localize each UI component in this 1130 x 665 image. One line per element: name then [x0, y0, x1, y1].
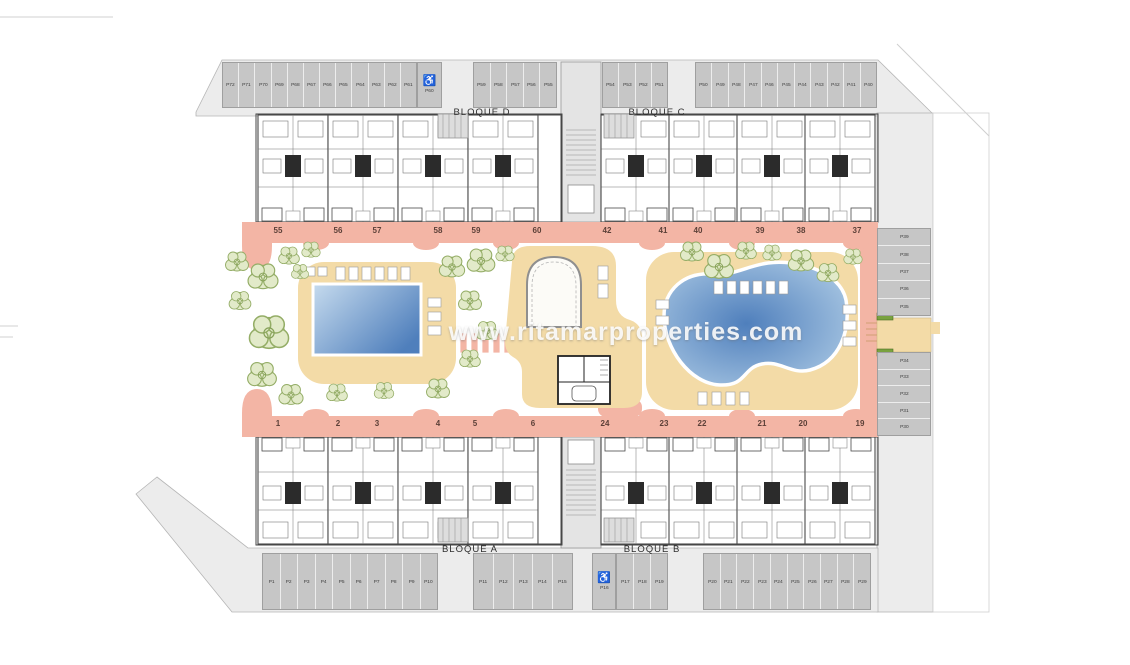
- building-bloque-c: [601, 114, 878, 222]
- parking-stall-label: P63: [372, 83, 381, 88]
- parking-stall-label: P27: [824, 579, 833, 584]
- parking-stall-p51: P51: [651, 63, 667, 107]
- parking-stall-label: P53: [623, 83, 632, 88]
- building-bloque-a: [258, 437, 561, 544]
- parking-stall-label: P10: [424, 579, 433, 584]
- parking-group-right-lower: P34P33P32P31P30: [877, 352, 931, 436]
- corridor-bottom: [561, 437, 601, 548]
- parking-stall-label: P72: [226, 83, 235, 88]
- parking-stall-label: P29: [858, 579, 867, 584]
- unit-number-58: 58: [434, 227, 443, 235]
- parking-stall-label: P1: [268, 579, 274, 584]
- parking-stall-p67: P67: [303, 63, 319, 107]
- parking-stall-p30: P30: [878, 418, 930, 435]
- unit-number-41: 41: [659, 227, 668, 235]
- parking-stall-p61: P61: [400, 63, 416, 107]
- parking-stall-p31: P31: [878, 402, 930, 419]
- parking-stall-label: P25: [791, 579, 800, 584]
- parking-stall-label: P71: [242, 83, 251, 88]
- parking-stall-label: P9: [408, 579, 414, 584]
- parking-stall-p24: P24: [770, 554, 787, 609]
- parking-stall-label: P7: [373, 579, 379, 584]
- parking-stall-p49: P49: [711, 63, 727, 107]
- parking-stall-p5: P5: [332, 554, 350, 609]
- parking-stall-p9: P9: [402, 554, 420, 609]
- parking-group-bottom-c: P17P18P19: [616, 553, 668, 610]
- parking-stall-p12: P12: [493, 554, 513, 609]
- parking-stall-p41: P41: [843, 63, 859, 107]
- parking-stall-label: P2: [286, 579, 292, 584]
- parking-stall-p55: P55: [539, 63, 556, 107]
- parking-stall-p29: P29: [853, 554, 870, 609]
- parking-stall-p56: P56: [523, 63, 540, 107]
- unit-number-6: 6: [531, 420, 535, 428]
- unit-number-5: 5: [473, 420, 477, 428]
- parking-stall-p63: P63: [368, 63, 384, 107]
- parking-stall-p14: P14: [532, 554, 552, 609]
- parking-stall-p42: P42: [827, 63, 843, 107]
- block-label-bloque-b: BLOQUE B: [624, 544, 681, 555]
- parking-stall-p25: P25: [787, 554, 804, 609]
- parking-stall-p62: P62: [384, 63, 400, 107]
- parking-stall-label: P13: [519, 579, 528, 584]
- unit-number-37: 37: [853, 227, 862, 235]
- parking-stall-p66: P66: [319, 63, 335, 107]
- parking-stall-label: P23: [758, 579, 767, 584]
- parking-group-top-acc: ♿P60: [417, 62, 442, 108]
- parking-stall-p16: ♿P16: [593, 554, 615, 609]
- parking-stall-label: P58: [494, 83, 503, 88]
- parking-stall-label: P6: [356, 579, 362, 584]
- unit-number-57: 57: [373, 227, 382, 235]
- central-pavilion: [527, 257, 581, 327]
- parking-stall-p65: P65: [335, 63, 351, 107]
- block-label-bloque-a: BLOQUE A: [442, 544, 498, 555]
- parking-stall-label: P17: [621, 579, 630, 584]
- unit-number-3: 3: [375, 420, 379, 428]
- parking-stall-p3: P3: [297, 554, 315, 609]
- parking-stall-label: P44: [798, 83, 807, 88]
- unit-number-59: 59: [472, 227, 481, 235]
- parking-stall-p11: P11: [474, 554, 493, 609]
- parking-stall-label: P22: [741, 579, 750, 584]
- building-bloque-d: [256, 114, 562, 222]
- parking-stall-label: P56: [527, 83, 536, 88]
- corridor-top: [561, 62, 601, 222]
- changing-rooms: [558, 356, 610, 404]
- floor-plan: BLOQUE D BLOQUE C BLOQUE A BLOQUE B www.…: [0, 0, 1130, 665]
- parking-stall-p46: P46: [761, 63, 777, 107]
- unit-number-39: 39: [756, 227, 765, 235]
- wheelchair-icon: ♿: [423, 76, 437, 87]
- parking-group-bottom-b: P11P12P13P14P15: [473, 553, 573, 610]
- parking-stall-label: P61: [404, 83, 413, 88]
- parking-stall-p20: P20: [704, 554, 720, 609]
- unit-number-40: 40: [694, 227, 703, 235]
- parking-stall-label: P5: [338, 579, 344, 584]
- parking-stall-p43: P43: [810, 63, 826, 107]
- parking-stall-p13: P13: [513, 554, 533, 609]
- unit-number-22: 22: [698, 420, 707, 428]
- parking-stall-label: P12: [499, 579, 508, 584]
- parking-stall-p4: P4: [315, 554, 333, 609]
- parking-stall-p21: P21: [720, 554, 737, 609]
- parking-stall-p59: P59: [474, 63, 490, 107]
- parking-group-top-b: P59P58P57P56P55: [473, 62, 557, 108]
- parking-stall-p70: P70: [254, 63, 270, 107]
- unit-number-24: 24: [601, 420, 610, 428]
- parking-group-top-a: P72P71P70P69P68P67P66P65P64P63P62P61: [222, 62, 417, 108]
- parking-stall-p57: P57: [506, 63, 523, 107]
- parking-stall-p71: P71: [238, 63, 254, 107]
- unit-number-21: 21: [758, 420, 767, 428]
- parking-stall-p28: P28: [837, 554, 854, 609]
- parking-stall-label: P70: [259, 83, 268, 88]
- parking-stall-label: P42: [831, 83, 840, 88]
- parking-group-top-c: P54P53P52P51: [602, 62, 668, 108]
- parking-stall-p10: P10: [420, 554, 438, 609]
- parking-stall-label: P51: [655, 83, 664, 88]
- parking-stall-p40: P40: [860, 63, 876, 107]
- parking-stall-label: P66: [323, 83, 332, 88]
- unit-number-38: 38: [797, 227, 806, 235]
- parking-stall-p19: P19: [650, 554, 667, 609]
- parking-stall-p36: P36: [878, 280, 930, 297]
- parking-stall-label: P26: [808, 579, 817, 584]
- parking-stall-label: P40: [864, 83, 873, 88]
- crop-marks: [0, 17, 113, 337]
- parking-stall-p37: P37: [878, 263, 930, 280]
- parking-stall-label: P38: [900, 252, 909, 257]
- parking-stall-label: P31: [900, 408, 909, 413]
- parking-stall-label: P32: [900, 392, 909, 397]
- unit-number-60: 60: [533, 227, 542, 235]
- parking-stall-label: P59: [478, 83, 487, 88]
- parking-stall-label: P69: [275, 83, 284, 88]
- parking-stall-p18: P18: [633, 554, 650, 609]
- parking-stall-label: P49: [716, 83, 725, 88]
- parking-group-top-d: P50P49P48P47P46P45P44P43P42P41P40: [695, 62, 877, 108]
- parking-stall-label: P60: [425, 89, 434, 94]
- parking-stall-label: P37: [900, 270, 909, 275]
- parking-stall-label: P41: [848, 83, 857, 88]
- parking-stall-p26: P26: [803, 554, 820, 609]
- parking-stall-p15: P15: [552, 554, 572, 609]
- parking-stall-label: P45: [782, 83, 791, 88]
- parking-stall-label: P3: [303, 579, 309, 584]
- parking-stall-p44: P44: [794, 63, 810, 107]
- unit-number-56: 56: [334, 227, 343, 235]
- parking-stall-label: P65: [340, 83, 349, 88]
- parking-stall-label: P15: [558, 579, 567, 584]
- parking-stall-p50: P50: [696, 63, 711, 107]
- parking-stall-label: P52: [639, 83, 648, 88]
- parking-stall-label: P55: [544, 83, 553, 88]
- parking-stall-label: P35: [900, 304, 909, 309]
- parking-group-bottom-a: P1P2P3P4P5P6P7P8P9P10: [262, 553, 438, 610]
- parking-group-bottom-d: P20P21P22P23P24P25P26P27P28P29: [703, 553, 871, 610]
- parking-stall-label: P57: [511, 83, 520, 88]
- parking-stall-p53: P53: [618, 63, 634, 107]
- parking-stall-label: P54: [606, 83, 615, 88]
- parking-stall-label: P14: [539, 579, 548, 584]
- parking-stall-label: P33: [900, 375, 909, 380]
- parking-stall-label: P30: [900, 425, 909, 430]
- parking-stall-label: P64: [356, 83, 365, 88]
- parking-stall-p39: P39: [878, 229, 930, 245]
- parking-stall-p23: P23: [753, 554, 770, 609]
- building-bloque-b: [601, 437, 875, 544]
- unit-number-2: 2: [336, 420, 340, 428]
- parking-stall-p32: P32: [878, 385, 930, 402]
- entrance-ramp: [866, 313, 940, 356]
- parking-stall-label: P48: [732, 83, 741, 88]
- parking-stall-label: P18: [638, 579, 647, 584]
- parking-stall-p52: P52: [635, 63, 651, 107]
- unit-number-4: 4: [436, 420, 440, 428]
- parking-group-right-upper: P39P38P37P36P35: [877, 228, 931, 316]
- parking-stall-label: P19: [655, 579, 664, 584]
- parking-stall-label: P11: [479, 579, 487, 584]
- block-label-bloque-c: BLOQUE C: [628, 107, 685, 118]
- parking-stall-p69: P69: [271, 63, 287, 107]
- parking-stall-label: P16: [600, 585, 609, 590]
- parking-group-bottom-acc: ♿P16: [592, 553, 616, 610]
- parking-stall-label: P8: [391, 579, 397, 584]
- parking-stall-p22: P22: [736, 554, 753, 609]
- parking-stall-label: P4: [321, 579, 327, 584]
- unit-number-55: 55: [274, 227, 283, 235]
- parking-stall-p68: P68: [287, 63, 303, 107]
- parking-stall-p38: P38: [878, 245, 930, 262]
- parking-stall-p2: P2: [280, 554, 298, 609]
- parking-stall-p33: P33: [878, 369, 930, 386]
- parking-stall-p58: P58: [490, 63, 507, 107]
- parking-stall-label: P68: [291, 83, 300, 88]
- parking-stall-label: P50: [699, 83, 708, 88]
- unit-number-1: 1: [276, 420, 280, 428]
- watermark: www.ritamarproperties.com: [432, 318, 820, 347]
- parking-stall-label: P47: [749, 83, 758, 88]
- parking-stall-p35: P35: [878, 298, 930, 315]
- unit-number-23: 23: [660, 420, 669, 428]
- parking-stall-label: P28: [841, 579, 850, 584]
- parking-stall-label: P34: [900, 358, 909, 363]
- parking-stall-p34: P34: [878, 353, 930, 369]
- parking-stall-p54: P54: [603, 63, 618, 107]
- wheelchair-icon: ♿: [597, 573, 611, 584]
- parking-stall-p47: P47: [744, 63, 760, 107]
- parking-stall-p72: P72: [223, 63, 238, 107]
- parking-stall-p8: P8: [385, 554, 403, 609]
- parking-stall-label: P21: [724, 579, 733, 584]
- parking-stall-p64: P64: [351, 63, 367, 107]
- parking-stall-p48: P48: [728, 63, 744, 107]
- parking-stall-label: P39: [900, 235, 909, 240]
- unit-number-42: 42: [603, 227, 612, 235]
- parking-stall-p27: P27: [820, 554, 837, 609]
- parking-stall-label: P62: [388, 83, 397, 88]
- parking-stall-p45: P45: [777, 63, 793, 107]
- parking-stall-p1: P1: [263, 554, 280, 609]
- block-label-bloque-d: BLOQUE D: [453, 107, 510, 118]
- parking-stall-p6: P6: [350, 554, 368, 609]
- parking-stall-p7: P7: [367, 554, 385, 609]
- parking-stall-label: P36: [900, 287, 909, 292]
- parking-stall-label: P67: [307, 83, 316, 88]
- parking-stall-p17: P17: [617, 554, 633, 609]
- parking-stall-label: P43: [815, 83, 824, 88]
- unit-number-20: 20: [799, 420, 808, 428]
- parking-stall-label: P20: [708, 579, 717, 584]
- left-pool: [313, 284, 421, 355]
- parking-stall-p60: ♿P60: [418, 63, 441, 107]
- street-right: [933, 113, 989, 612]
- parking-stall-label: P24: [774, 579, 783, 584]
- unit-number-19: 19: [856, 420, 865, 428]
- parking-stall-label: P46: [765, 83, 774, 88]
